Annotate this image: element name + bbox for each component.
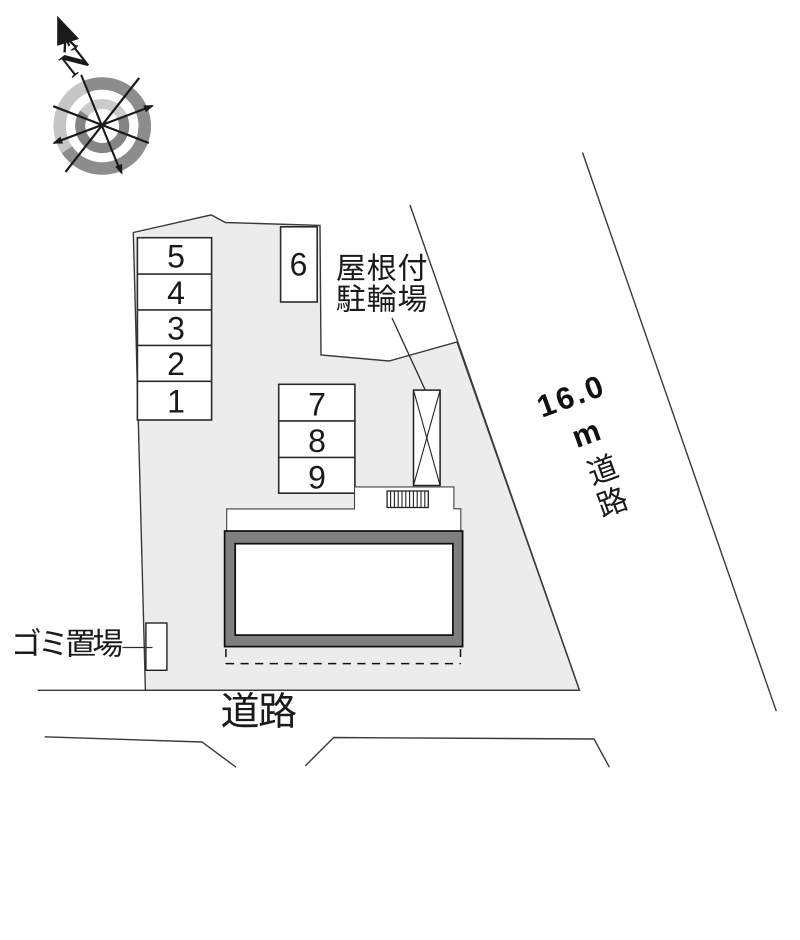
svg-text:1: 1 bbox=[167, 383, 185, 419]
svg-text:4: 4 bbox=[167, 275, 185, 311]
svg-text:3: 3 bbox=[167, 310, 185, 346]
svg-text:5: 5 bbox=[167, 239, 185, 275]
svg-text:2: 2 bbox=[167, 346, 185, 382]
svg-text:6: 6 bbox=[290, 247, 308, 283]
svg-text:7: 7 bbox=[308, 387, 326, 423]
svg-text:9: 9 bbox=[308, 459, 326, 495]
svg-text:8: 8 bbox=[308, 423, 326, 459]
